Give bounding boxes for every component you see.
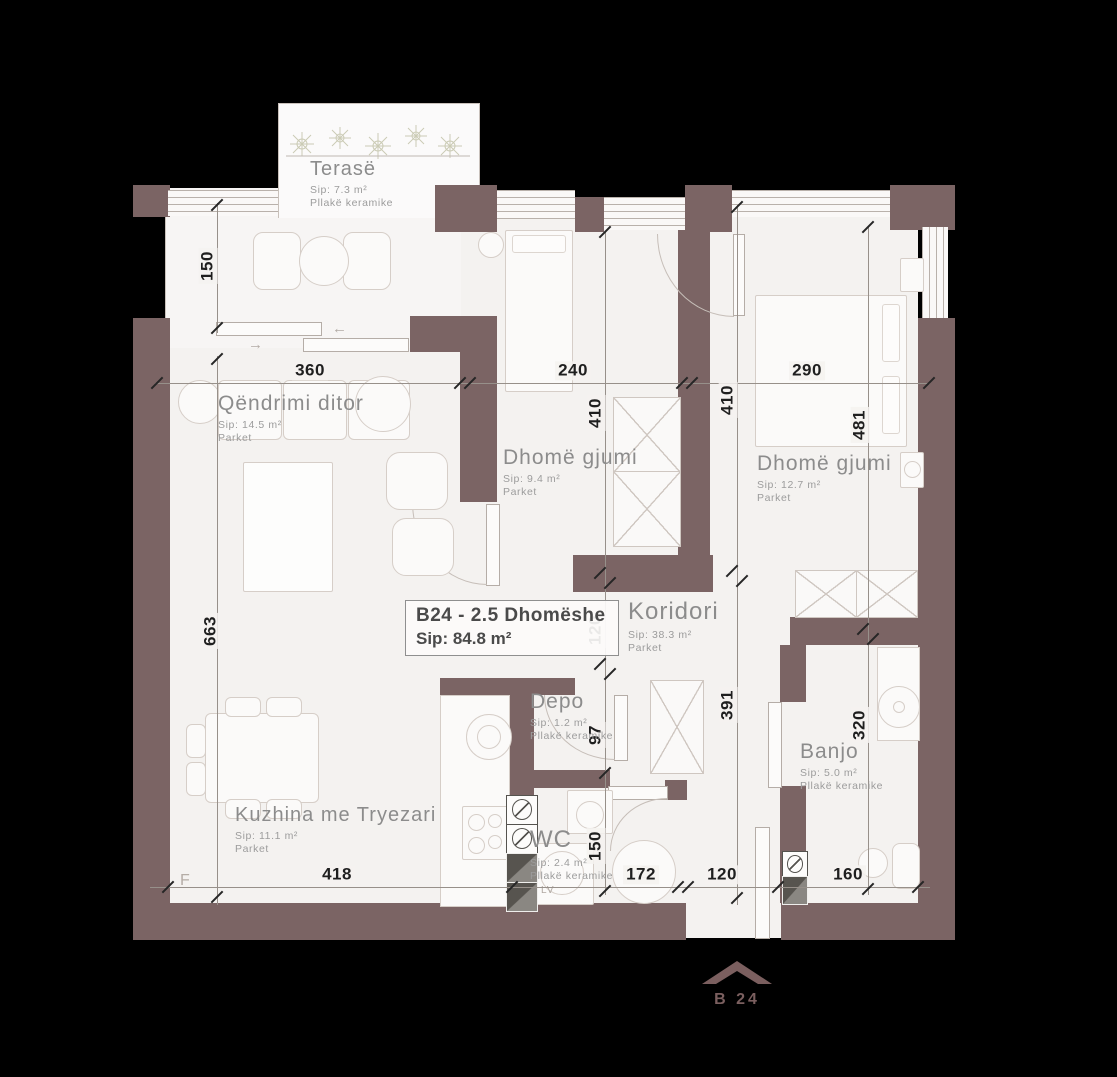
room-area: Sip: 11.1 m² (235, 830, 436, 843)
wall-segment (133, 185, 170, 217)
slide-right-icon: → (248, 337, 263, 352)
dimension-label: 290 (789, 361, 825, 380)
terrace-table (299, 236, 349, 286)
room-name: Koridori (628, 598, 719, 626)
room-name: Qëndrimi ditor (218, 392, 364, 416)
window (604, 197, 685, 230)
chair (225, 697, 261, 717)
room-area: Sip: 1.2 m² (530, 717, 613, 730)
terrace-chair (253, 232, 301, 290)
chair (186, 762, 206, 796)
armchair (392, 518, 454, 576)
room-area: Sip: 5.0 m² (800, 767, 883, 780)
room-name: Dhomë gjumi (757, 452, 892, 476)
room-area: Sip: 38.3 m² (628, 629, 719, 642)
wall-segment (435, 185, 497, 232)
room-label-terase: Terasë Sip: 7.3 m² Pllakë keramike (310, 158, 393, 210)
room-floor: Parket (757, 492, 892, 505)
wall-segment (525, 770, 610, 788)
room-floor: Parket (628, 642, 719, 655)
window (732, 190, 890, 217)
logo-roof-icon (700, 958, 774, 990)
stove (462, 806, 510, 860)
wall-segment (780, 645, 806, 702)
dimension-label: 410 (719, 382, 738, 418)
dimension-label: 481 (851, 407, 870, 443)
bath-sink (878, 686, 920, 728)
room-floor: Pllakë keramike (800, 780, 883, 793)
wall-segment (790, 617, 918, 645)
toilet (892, 843, 920, 889)
wall-segment (890, 185, 955, 230)
nightstand (900, 452, 924, 488)
window (922, 227, 948, 318)
room-area: Sip: 9.4 m² (503, 473, 638, 486)
dimension-label: 391 (719, 687, 738, 723)
wardrobe (856, 570, 918, 618)
dimension-label: 150 (199, 248, 218, 284)
dimension-line (737, 205, 738, 905)
dimension-line (868, 227, 869, 895)
room-floor: Pllakë keramike (310, 197, 393, 210)
wall-segment (133, 318, 170, 940)
entry-door-leaf (755, 827, 770, 939)
room-floor: Parket (503, 486, 638, 499)
chair (266, 697, 302, 717)
bed (755, 295, 907, 447)
unit-area: Sip: 84.8 m² (416, 629, 606, 649)
wall-segment (575, 197, 604, 232)
room-label-depo: Depo Sip: 1.2 m² Pllakë keramike (530, 690, 613, 743)
coffee-table (243, 462, 333, 592)
wall-segment (410, 316, 497, 352)
wall-segment (665, 780, 687, 800)
room-label-wc: WC Sip: 2.4 m² Pllakë keramike (530, 826, 613, 883)
room-label-kuzhina: Kuzhina me Tryezari Sip: 11.1 m² Parket (235, 804, 436, 856)
shaft-cell (506, 795, 538, 825)
room-area: Sip: 7.3 m² (310, 184, 393, 197)
dimension-label: 172 (623, 865, 659, 884)
room-label-koridori: Koridori Sip: 38.3 m² Parket (628, 598, 719, 655)
door-leaf (486, 504, 500, 586)
armchair (386, 452, 448, 510)
terrace-railing (168, 190, 278, 216)
room-name: Depo (530, 690, 613, 714)
dimension-line (155, 383, 930, 384)
door-leaf (733, 234, 745, 316)
room-label-dhome-gjumi-1: Dhomë gjumi Sip: 9.4 m² Parket (503, 446, 638, 499)
dimension-line (150, 887, 930, 888)
nightstand (900, 258, 924, 292)
logo-text: B 24 (700, 991, 774, 1009)
dimension-line (605, 232, 606, 895)
plant-icon (178, 380, 222, 424)
sliding-door-panel (216, 322, 322, 336)
wall-segment (133, 903, 686, 940)
chair (186, 724, 206, 758)
window (497, 190, 575, 219)
closet (650, 680, 704, 774)
room-name: WC (530, 826, 613, 854)
dimension-label: 160 (830, 865, 866, 884)
sliding-door-panel (303, 338, 409, 352)
room-label-banjo: Banjo Sip: 5.0 m² Pllakë keramike (800, 740, 883, 793)
wall-segment (460, 352, 497, 502)
dimension-label: 360 (292, 361, 328, 380)
logo: B 24 (700, 958, 774, 1009)
shaft-cell (782, 851, 808, 877)
wardrobe (795, 570, 857, 618)
dining-table (205, 713, 319, 803)
dimension-label: 320 (851, 707, 870, 743)
room-floor: Parket (218, 432, 364, 445)
unit-code: B24 - 2.5 Dhomëshe (416, 605, 606, 627)
room-floor: Pllakë keramike (530, 730, 613, 743)
wall-segment (573, 555, 713, 592)
terrace-chair (343, 232, 391, 290)
room-label-qendrimi: Qëndrimi ditor Sip: 14.5 m² Parket (218, 392, 364, 445)
room-floor: Parket (235, 843, 436, 856)
f-marker: F (180, 872, 191, 890)
unit-label-box: B24 - 2.5 Dhomëshe Sip: 84.8 m² (405, 600, 619, 656)
room-name: Dhomë gjumi (503, 446, 638, 470)
dimension-label: 240 (555, 361, 591, 380)
room-area: Sip: 12.7 m² (757, 479, 892, 492)
shaft-cell (782, 876, 808, 905)
door-leaf (614, 695, 628, 761)
room-name: Terasë (310, 158, 393, 181)
room-area: Sip: 14.5 m² (218, 419, 364, 432)
dimension-label: 418 (319, 865, 355, 884)
stool (478, 232, 504, 258)
room-label-dhome-gjumi-2: Dhomë gjumi Sip: 12.7 m² Parket (757, 452, 892, 505)
dimension-label: 410 (587, 395, 606, 431)
room-name: Kuzhina me Tryezari (235, 804, 436, 827)
floor-plan: ← → (0, 0, 1117, 1077)
door-leaf (768, 702, 782, 788)
slide-left-icon: ← (332, 321, 347, 336)
kitchen-sink (466, 714, 512, 760)
room-name: Banjo (800, 740, 883, 764)
wall-segment (918, 318, 955, 940)
wall-segment (685, 185, 732, 232)
room-area: Sip: 2.4 m² (530, 857, 613, 870)
wall-segment (440, 678, 508, 695)
room-floor: Pllakë keramike (530, 870, 613, 883)
dimension-label: 120 (704, 865, 740, 884)
dimension-label: 663 (202, 613, 221, 649)
